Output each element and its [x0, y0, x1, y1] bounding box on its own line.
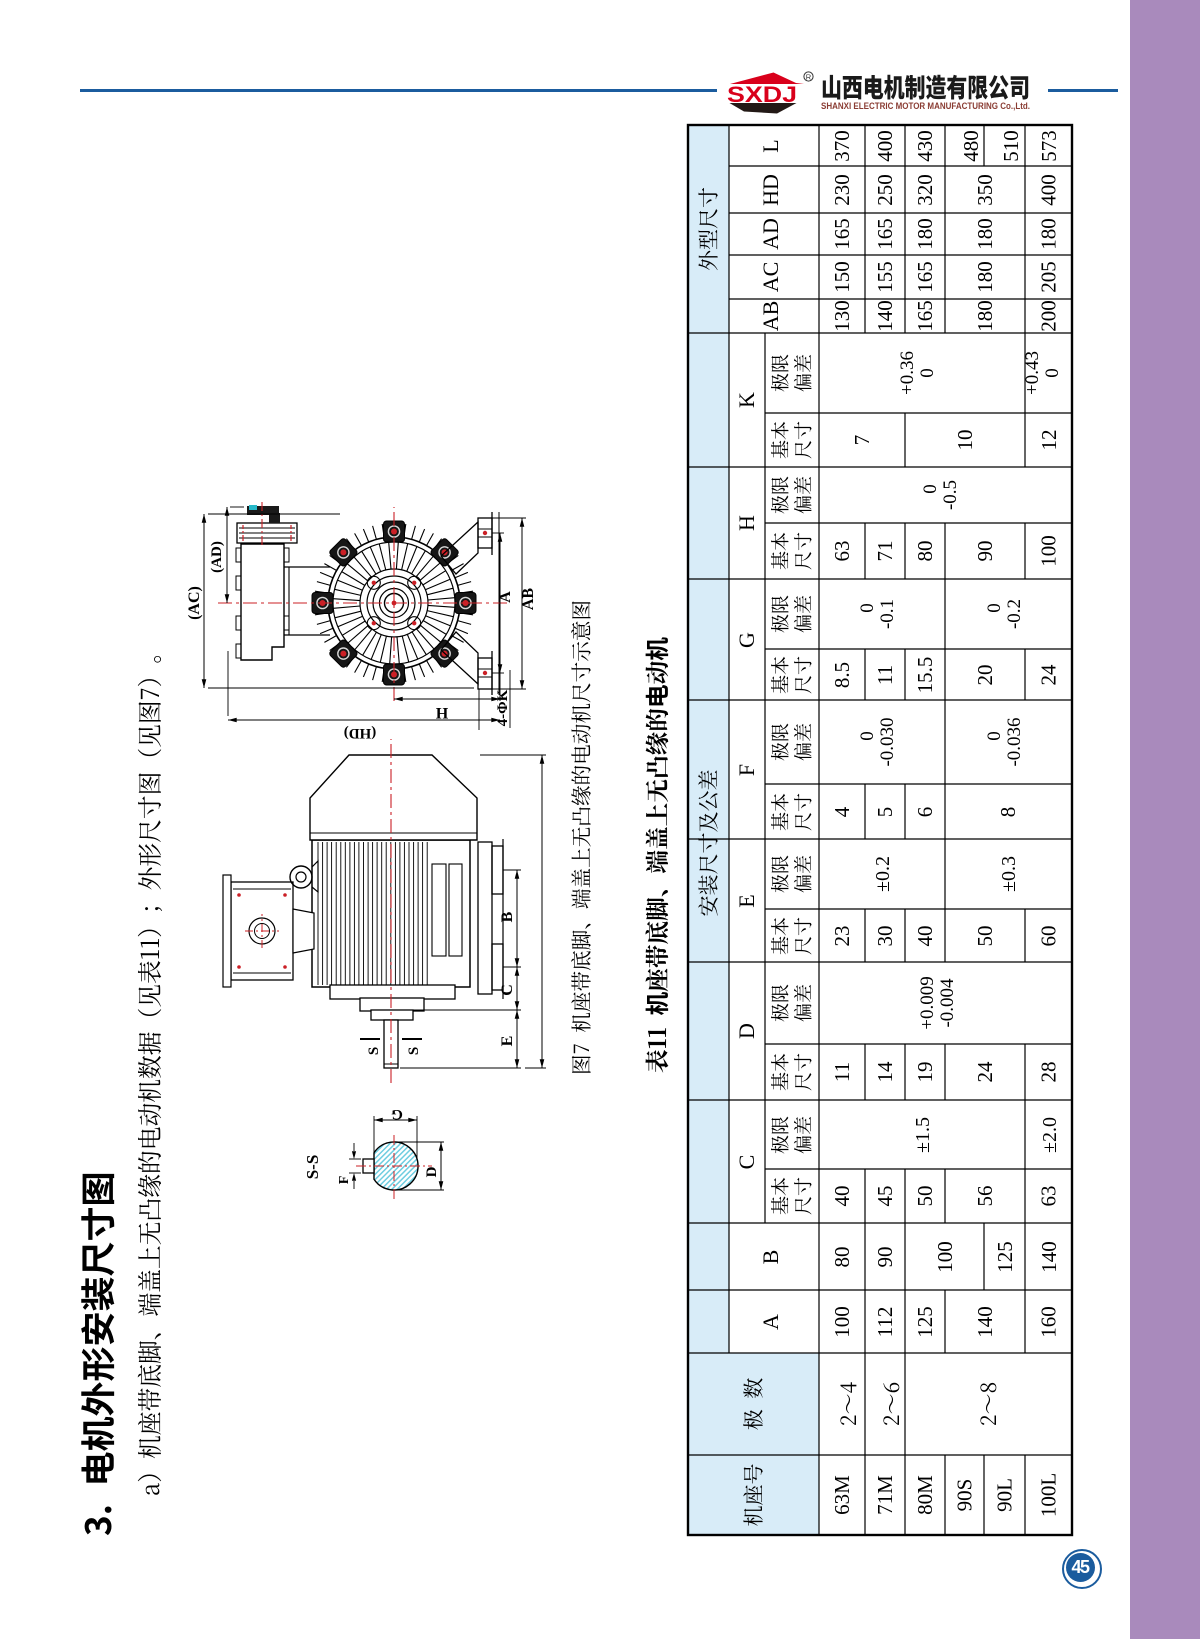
- svg-text:8.5: 8.5: [830, 662, 854, 688]
- svg-text:45: 45: [873, 1186, 897, 1207]
- svg-text:S: S: [366, 1047, 382, 1055]
- svg-text:C: C: [734, 1155, 759, 1170]
- svg-text:R: R: [806, 73, 812, 82]
- svg-text:430: 430: [913, 130, 937, 162]
- svg-text:+0.43: +0.43: [1022, 351, 1043, 395]
- svg-text:±0.3: ±0.3: [998, 856, 1020, 892]
- svg-text:180: 180: [973, 300, 997, 332]
- svg-text:150: 150: [830, 261, 854, 293]
- svg-text:90: 90: [873, 1247, 897, 1268]
- svg-text:AB: AB: [520, 588, 537, 611]
- svg-text:23: 23: [830, 926, 854, 947]
- svg-text:480: 480: [959, 130, 983, 162]
- svg-text:14: 14: [873, 1061, 897, 1083]
- svg-text:SHANXI ELECTRIC MOTOR MANUFACT: SHANXI ELECTRIC MOTOR MANUFACTURING Co.,…: [821, 101, 1030, 111]
- svg-text:80: 80: [830, 1247, 854, 1268]
- svg-text:H: H: [734, 515, 759, 531]
- svg-text:10: 10: [953, 430, 977, 451]
- svg-text:60: 60: [1037, 926, 1061, 947]
- svg-text:-0.5: -0.5: [940, 480, 961, 510]
- svg-text:11: 11: [873, 665, 897, 685]
- svg-text:0: 0: [984, 731, 1005, 741]
- svg-text:63M: 63M: [830, 1475, 854, 1515]
- svg-text:D: D: [734, 1023, 759, 1039]
- svg-text:24: 24: [973, 1061, 997, 1083]
- svg-text:-0.036: -0.036: [1004, 717, 1025, 766]
- svg-text:15.5: 15.5: [913, 657, 937, 694]
- svg-text:G: G: [391, 1106, 403, 1122]
- svg-text:165: 165: [830, 218, 854, 250]
- svg-text:80M: 80M: [913, 1475, 937, 1515]
- svg-text:B: B: [758, 1250, 783, 1265]
- svg-text:-0.004: -0.004: [937, 978, 958, 1028]
- svg-text:(AD): (AD): [209, 541, 225, 573]
- svg-text:320: 320: [913, 174, 937, 206]
- svg-text:180: 180: [1037, 218, 1061, 250]
- svg-text:K: K: [734, 392, 759, 408]
- svg-text:S: S: [406, 1047, 422, 1055]
- svg-text:7: 7: [850, 435, 874, 446]
- svg-text:100L: 100L: [1037, 1473, 1061, 1517]
- svg-text:±2.0: ±2.0: [1039, 1117, 1061, 1153]
- svg-text:165: 165: [913, 261, 937, 293]
- svg-text:-0.2: -0.2: [1004, 599, 1025, 629]
- svg-text:63: 63: [830, 541, 854, 562]
- svg-text:(AC): (AC): [186, 586, 203, 620]
- svg-text:63: 63: [1037, 1186, 1061, 1207]
- svg-text:-0.1: -0.1: [877, 599, 898, 629]
- svg-text:F: F: [337, 1176, 352, 1185]
- svg-text:0: 0: [920, 484, 941, 494]
- svg-text:4: 4: [830, 806, 854, 817]
- svg-text:0: 0: [1042, 368, 1063, 378]
- svg-text:0: 0: [917, 368, 938, 378]
- svg-text:140: 140: [1037, 1241, 1061, 1273]
- svg-text:HD: HD: [758, 174, 783, 206]
- svg-text:L: L: [758, 139, 783, 152]
- svg-text:±0.2: ±0.2: [872, 856, 894, 892]
- svg-text:56: 56: [973, 1186, 997, 1207]
- svg-text:0: 0: [857, 731, 878, 741]
- svg-text:SXDJ: SXDJ: [727, 82, 797, 107]
- svg-text:400: 400: [873, 130, 897, 162]
- svg-text:0: 0: [857, 603, 878, 613]
- svg-text:140: 140: [973, 1306, 997, 1338]
- svg-text:0: 0: [984, 603, 1005, 613]
- svg-text:71M: 71M: [873, 1475, 897, 1515]
- svg-text:40: 40: [830, 1186, 854, 1207]
- svg-text:112: 112: [873, 1307, 897, 1338]
- svg-text:370: 370: [830, 130, 854, 162]
- svg-text:573: 573: [1037, 130, 1061, 162]
- svg-text:6: 6: [913, 807, 937, 818]
- svg-text:G: G: [734, 632, 759, 648]
- svg-text:C: C: [499, 984, 516, 996]
- svg-text:90: 90: [973, 541, 997, 562]
- svg-text:80: 80: [913, 541, 937, 562]
- svg-text:40: 40: [913, 926, 937, 947]
- svg-text:180: 180: [973, 261, 997, 293]
- svg-text:165: 165: [913, 300, 937, 332]
- svg-text:E: E: [499, 1036, 516, 1047]
- svg-text:A: A: [758, 1314, 783, 1330]
- svg-text:24: 24: [1037, 664, 1061, 686]
- svg-text:5: 5: [873, 807, 897, 818]
- svg-text:+0.009: +0.009: [917, 976, 938, 1029]
- svg-text:71: 71: [873, 541, 897, 562]
- svg-text:H: H: [435, 704, 448, 721]
- svg-text:90S: 90S: [953, 1479, 977, 1512]
- svg-text:100: 100: [933, 1241, 957, 1273]
- svg-text:11: 11: [830, 1062, 854, 1082]
- svg-text:30: 30: [873, 926, 897, 947]
- svg-text:165: 165: [873, 218, 897, 250]
- svg-text:±1.5: ±1.5: [912, 1117, 934, 1153]
- svg-text:200: 200: [1037, 300, 1061, 332]
- svg-text:180: 180: [913, 218, 937, 250]
- svg-text:100: 100: [1037, 535, 1061, 567]
- svg-text:S-S: S-S: [303, 1155, 322, 1180]
- svg-text:140: 140: [873, 300, 897, 332]
- svg-text:510: 510: [999, 130, 1023, 162]
- svg-text:28: 28: [1037, 1062, 1061, 1083]
- svg-text:AD: AD: [758, 218, 783, 250]
- svg-text:130: 130: [830, 300, 854, 332]
- svg-text:20: 20: [973, 665, 997, 686]
- svg-text:155: 155: [873, 261, 897, 293]
- svg-text:125: 125: [913, 1306, 937, 1338]
- svg-text:50: 50: [973, 926, 997, 947]
- svg-text:D: D: [424, 1166, 440, 1177]
- svg-text:350: 350: [973, 174, 997, 206]
- svg-text:180: 180: [973, 218, 997, 250]
- svg-text:50: 50: [913, 1186, 937, 1207]
- svg-text:AB: AB: [758, 301, 783, 332]
- svg-text:F: F: [734, 764, 759, 776]
- svg-text:4-ΦK: 4-ΦK: [495, 689, 511, 726]
- svg-text:90L: 90L: [993, 1478, 1017, 1512]
- svg-text:AC: AC: [758, 262, 783, 293]
- svg-text:8: 8: [996, 807, 1020, 818]
- svg-text:100: 100: [830, 1306, 854, 1338]
- svg-text:B: B: [499, 911, 516, 922]
- svg-text:125: 125: [993, 1241, 1017, 1273]
- svg-text:250: 250: [873, 174, 897, 206]
- svg-text:19: 19: [913, 1062, 937, 1083]
- svg-text:230: 230: [830, 174, 854, 206]
- svg-text:160: 160: [1037, 1306, 1061, 1338]
- svg-text:12: 12: [1037, 430, 1061, 451]
- svg-text:E: E: [734, 894, 759, 907]
- svg-text:(HD): (HD): [344, 725, 377, 741]
- svg-text:205: 205: [1037, 261, 1061, 293]
- svg-text:+0.36: +0.36: [897, 351, 918, 395]
- svg-text:400: 400: [1037, 174, 1061, 206]
- svg-text:-0.030: -0.030: [877, 717, 898, 766]
